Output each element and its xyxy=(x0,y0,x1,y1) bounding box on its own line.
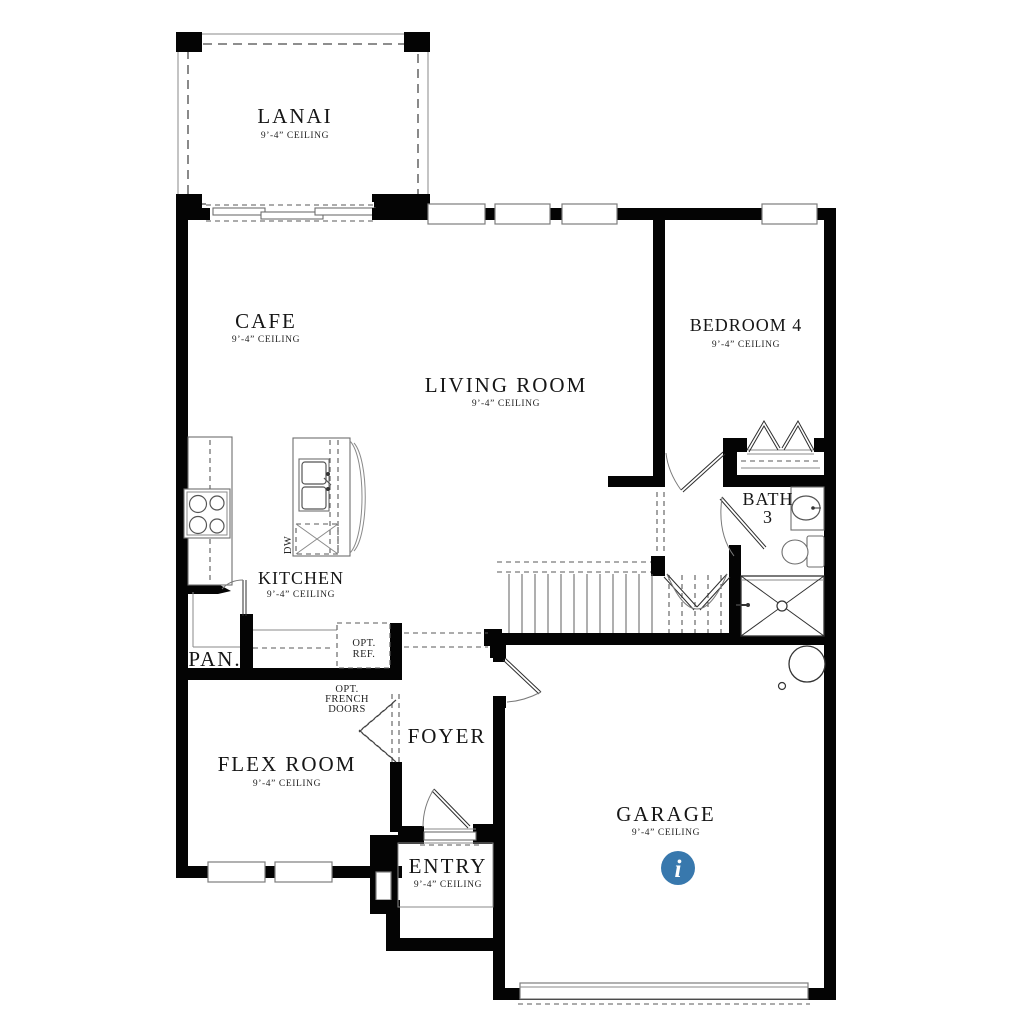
stairs xyxy=(497,562,730,633)
garage-label: GARAGE xyxy=(616,802,716,826)
bath-fixtures xyxy=(736,487,824,636)
flex-room-label: FLEX ROOM xyxy=(218,752,357,776)
bedroom4-wall xyxy=(653,220,665,487)
lanai-label: LANAI xyxy=(257,104,332,128)
floor-plan-svg: LANAI 9’-4” CEILING CAFE 9’-4” CEILING L… xyxy=(0,0,1016,1035)
bedroom4-ceiling: 9’-4” CEILING xyxy=(712,340,780,350)
garage-ceiling: 9’-4” CEILING xyxy=(632,828,700,838)
kitchen-island xyxy=(293,438,365,556)
dishwasher-label: DW xyxy=(283,536,294,554)
bath-closet-wall xyxy=(737,475,836,487)
opt-ref-line1: OPT. xyxy=(352,638,375,649)
pantry-door xyxy=(222,580,246,616)
kitchen-ceiling: 9’-4” CEILING xyxy=(267,590,335,600)
window xyxy=(428,204,485,224)
pantry-wall xyxy=(240,614,253,680)
stair-treads xyxy=(509,574,652,633)
closet-bifold xyxy=(737,421,826,468)
sliding-door xyxy=(206,202,375,224)
range-cooktop xyxy=(184,489,230,538)
window xyxy=(495,204,550,224)
living-room-label: LIVING ROOM xyxy=(425,373,588,397)
toilet xyxy=(782,536,824,567)
window xyxy=(562,204,617,224)
garage-fixtures xyxy=(779,646,826,690)
info-button[interactable]: i xyxy=(661,851,695,885)
lanai-ceiling: 9’-4” CEILING xyxy=(261,131,329,141)
window xyxy=(275,862,332,882)
foyer-label: FOYER xyxy=(408,724,487,748)
flex-room-ceiling: 9’-4” CEILING xyxy=(253,779,321,789)
understair-closet xyxy=(664,574,730,633)
garage-entry-door xyxy=(490,644,541,708)
bedroom4-door xyxy=(666,452,725,492)
bath-sink xyxy=(791,487,824,530)
bedroom4-label: BEDROOM 4 xyxy=(690,315,803,335)
living-room-ceiling: 9’-4” CEILING xyxy=(472,399,540,409)
entry-label: ENTRY xyxy=(409,854,488,878)
pantry-label: PAN. xyxy=(188,647,241,671)
lanai-post xyxy=(176,32,202,52)
bath3-label: BATH xyxy=(742,489,793,509)
info-icon[interactable]: i xyxy=(675,856,682,883)
window xyxy=(762,204,817,224)
cased-openings xyxy=(404,492,664,647)
floor-drain xyxy=(779,683,786,690)
cafe-ceiling: 9’-4” CEILING xyxy=(232,335,300,345)
lanai-structure xyxy=(176,32,430,224)
window xyxy=(208,862,265,882)
opt-french-doors-line3: DOORS xyxy=(328,704,366,715)
shower xyxy=(736,576,824,636)
opt-ref-line2: REF. xyxy=(353,649,376,660)
garage-door xyxy=(518,983,810,1004)
kitchen-label: KITCHEN xyxy=(258,568,344,588)
kitchen-sink xyxy=(299,459,331,511)
cafe-label: CAFE xyxy=(235,309,297,333)
front-door xyxy=(420,789,480,845)
bath3-label-number: 3 xyxy=(763,507,773,527)
water-heater xyxy=(789,646,825,682)
lanai-post xyxy=(404,32,430,52)
annotation-labels: OPT. REF. OPT. FRENCH DOORS DW xyxy=(283,536,376,715)
entry-ceiling: 9’-4” CEILING xyxy=(414,880,482,890)
floor-plan-page: LANAI 9’-4” CEILING CAFE 9’-4” CEILING L… xyxy=(0,0,1016,1035)
